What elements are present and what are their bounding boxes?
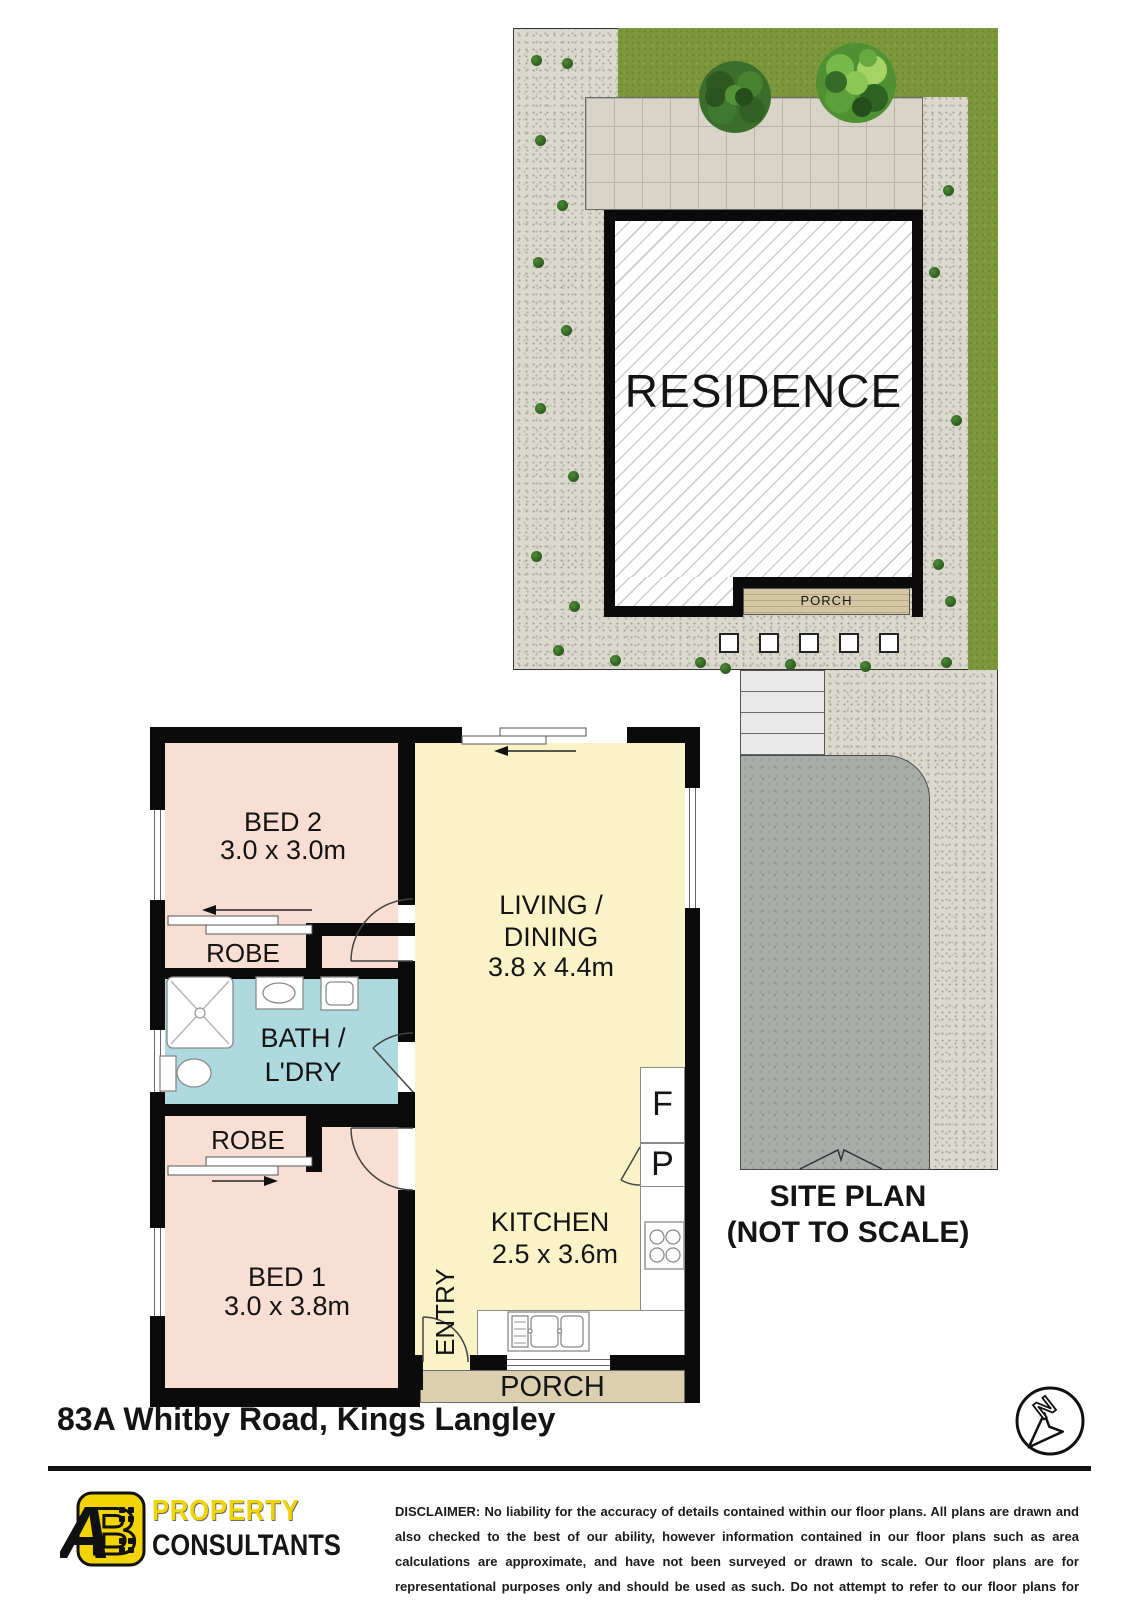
shrub-icon — [720, 663, 731, 674]
shrub-icon — [929, 267, 940, 278]
site-porch-label: PORCH — [743, 594, 910, 608]
kitchen-name: KITCHEN — [450, 1208, 650, 1238]
bed1-dims: 3.0 x 3.8m — [187, 1292, 387, 1322]
shrub-icon — [533, 257, 544, 268]
shrub-icon — [535, 403, 546, 414]
bed2-dims: 3.0 x 3.0m — [183, 836, 383, 866]
disclaimer-text: DISCLAIMER: No liability for the accurac… — [395, 1499, 1079, 1600]
shrub-icon — [531, 55, 542, 66]
toilet-icon — [160, 1056, 211, 1091]
bath-name-line2: L'DRY — [223, 1058, 383, 1088]
basin-icon — [256, 977, 303, 1009]
entry-label: ENTRY — [430, 1260, 460, 1365]
tree-icon — [699, 61, 771, 133]
kitchen-dims: 2.5 x 3.6m — [455, 1240, 655, 1270]
living-name-line2: DINING — [451, 923, 651, 953]
shrub-icon — [562, 58, 573, 69]
shrub-icon — [943, 185, 954, 196]
plan-porch-label: PORCH — [420, 1372, 685, 1404]
driveway-crossover-mark — [800, 1150, 882, 1169]
logo-property-text: PROPERTY — [152, 1495, 299, 1528]
north-arrow-icon: N — [1008, 1380, 1094, 1466]
sink-icon — [508, 1312, 589, 1351]
shrub-icon — [568, 471, 579, 482]
shrub-icon — [561, 325, 572, 336]
plan-linework — [0, 0, 1141, 1600]
residence-label: RESIDENCE — [604, 366, 923, 417]
robe-top-label: ROBE — [193, 939, 293, 968]
robe-sliding-door — [168, 905, 312, 934]
floorplan-page: RESIDENCE PORCH SITE PLAN (NOT TO SCALE)… — [0, 0, 1141, 1600]
bath-name-line1: BATH / — [223, 1024, 383, 1054]
bed2-name: BED 2 — [183, 808, 383, 838]
laundry-tub-icon — [321, 977, 358, 1010]
divider-line — [48, 1466, 1091, 1471]
pantry-label: P — [640, 1146, 685, 1183]
shrub-icon — [535, 135, 546, 146]
sliding-door — [462, 727, 627, 756]
shrub-icon — [557, 200, 568, 211]
shrub-icon — [941, 657, 952, 668]
ab-logo-icon: B A — [60, 1490, 152, 1570]
shrub-icon — [569, 601, 580, 612]
shrub-icon — [945, 596, 956, 607]
shrub-icon — [553, 645, 564, 656]
site-plan-caption: SITE PLAN — [698, 1180, 998, 1213]
robe-bottom-label: ROBE — [198, 1126, 298, 1155]
robe-sliding-door — [168, 1157, 312, 1186]
svg-text:A: A — [60, 1491, 111, 1570]
living-dims: 3.8 x 4.4m — [451, 953, 651, 983]
shrub-icon — [610, 655, 621, 666]
logo-consultants-text: CONSULTANTS — [152, 1529, 341, 1563]
tree-icon — [816, 43, 896, 123]
bed1-name: BED 1 — [187, 1263, 387, 1293]
site-plan-caption-scale: (NOT TO SCALE) — [698, 1216, 998, 1249]
fridge-label: F — [640, 1086, 685, 1123]
address-title: 83A Whitby Road, Kings Langley — [57, 1402, 757, 1437]
shrub-icon — [860, 661, 871, 672]
shrub-icon — [695, 657, 706, 668]
shrub-icon — [785, 659, 796, 670]
shrub-icon — [933, 559, 944, 570]
living-name-line1: LIVING / — [451, 891, 651, 921]
shrub-icon — [531, 551, 542, 562]
shrub-icon — [951, 415, 962, 426]
